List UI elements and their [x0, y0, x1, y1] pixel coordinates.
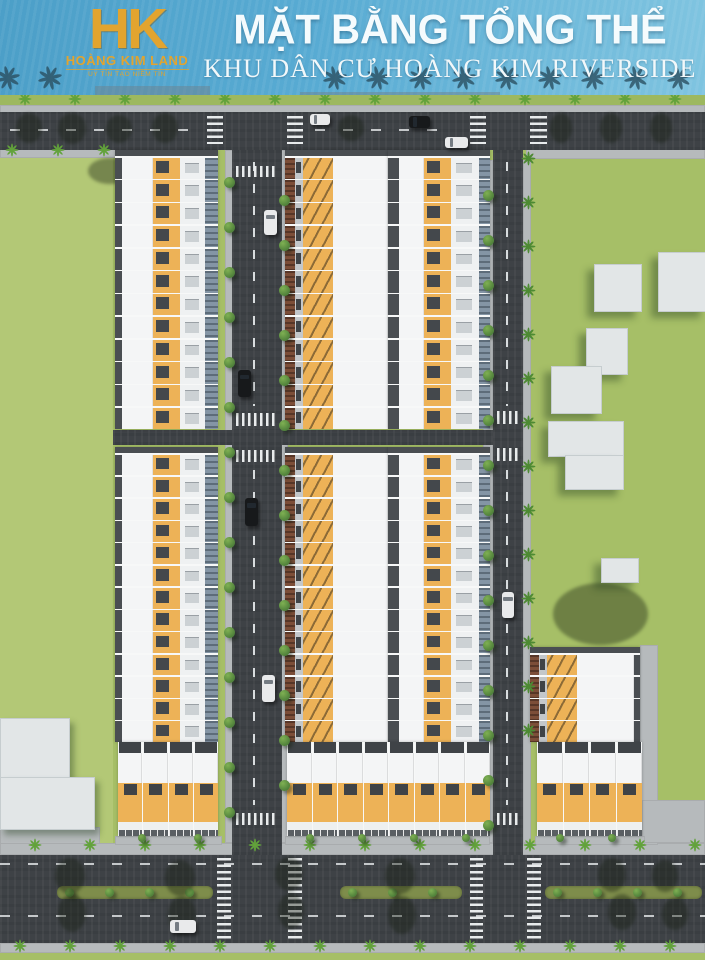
roof-header	[467, 742, 490, 753]
house-row	[388, 699, 490, 720]
roof-segment-osky	[153, 477, 180, 498]
roof-segment-osky	[153, 385, 180, 406]
house-row	[388, 340, 490, 361]
garage-door	[370, 784, 383, 795]
tree-icon	[483, 325, 494, 336]
house-row	[285, 566, 388, 587]
roof-detail	[296, 412, 300, 423]
roof-segment-dark	[634, 699, 640, 720]
roof-segment-white	[333, 610, 388, 631]
tree-icon	[553, 888, 562, 897]
tree-icon	[224, 447, 235, 458]
roof-segment-dark	[388, 588, 399, 609]
facade	[364, 822, 389, 830]
house-row	[115, 362, 218, 383]
roof-detail	[296, 276, 300, 287]
roof-detail	[456, 615, 472, 626]
house-row	[285, 655, 388, 676]
roof-segment-white	[399, 699, 424, 720]
roof-segment-awn	[479, 521, 490, 542]
palm-tree-icon	[663, 939, 677, 953]
roof-detail	[427, 658, 440, 670]
block-rows	[115, 453, 218, 742]
roof-detail	[156, 525, 169, 537]
roof-segment-white	[399, 158, 424, 179]
roof-segment-white	[399, 317, 424, 338]
house-row	[388, 226, 490, 247]
roof-detail	[296, 321, 300, 332]
roof-segment-entry	[295, 566, 303, 587]
roof-detail	[456, 185, 472, 196]
roof-segment-entry	[295, 226, 303, 247]
roof-segment-osky	[424, 566, 451, 587]
facade	[313, 822, 338, 830]
house-row	[115, 477, 218, 498]
tree-icon	[279, 195, 290, 206]
roof-segment-ox	[547, 699, 577, 720]
roof-segment-white	[399, 655, 424, 676]
roof-segment-entry	[295, 317, 303, 338]
tree-icon	[673, 888, 682, 897]
roof-segment-brown	[285, 385, 295, 406]
tree-icon	[483, 775, 494, 786]
roof-segment-white	[399, 455, 424, 476]
roof-segment-white	[122, 588, 153, 609]
road	[493, 150, 523, 855]
roof-segment-ox	[303, 521, 333, 542]
roof-segment-ox	[303, 249, 333, 270]
house	[194, 742, 218, 836]
garage-door	[596, 784, 609, 795]
roof-segment-front	[451, 203, 479, 224]
house-row	[388, 294, 490, 315]
tree-icon	[483, 595, 494, 606]
roof-detail	[185, 254, 200, 265]
palm-tree-icon	[463, 939, 477, 953]
block-rows	[388, 156, 490, 429]
company-logo: HK HOÀNG KIM LAND UY TÍN TẠO NIỀM TIN	[52, 2, 202, 78]
roof-header	[339, 742, 362, 753]
roof-segment-white	[122, 294, 153, 315]
roof-segment-ox	[303, 610, 333, 631]
roof-detail	[456, 660, 472, 671]
roof-detail	[185, 299, 200, 310]
roof-segment-awn	[205, 677, 218, 698]
building	[565, 455, 624, 490]
house	[169, 742, 193, 836]
palm-silhouette-icon	[0, 62, 24, 94]
roof-segment-ox	[303, 317, 333, 338]
roof-header	[365, 742, 388, 753]
roof-segment-awn	[479, 203, 490, 224]
roof-segment-awn	[205, 408, 218, 429]
roof-segment-awn	[479, 655, 490, 676]
roof-segment-front	[451, 249, 479, 270]
roof-segment-osky	[153, 566, 180, 587]
roof-detail	[185, 208, 200, 219]
palm-tree-icon	[248, 838, 262, 852]
house-row	[115, 180, 218, 201]
roof-segment-white	[333, 408, 388, 429]
roof-segment-white	[333, 271, 388, 292]
roof-segment-ox	[303, 588, 333, 609]
roof-detail	[185, 367, 200, 378]
roof-detail	[456, 637, 472, 648]
roof-segment-front	[451, 455, 479, 476]
roof-segment-osky	[424, 362, 451, 383]
crosswalk	[236, 813, 278, 825]
house-row	[285, 362, 388, 383]
roof-segment-brown	[285, 610, 295, 631]
roof-detail	[185, 526, 200, 537]
roof-segment-white	[122, 477, 153, 498]
tree-icon	[633, 888, 642, 897]
roof-detail	[156, 343, 169, 355]
car-windshield	[240, 375, 250, 379]
house-row	[388, 499, 490, 520]
facade	[169, 822, 193, 830]
roof-segment-white	[333, 521, 388, 542]
tree-icon	[483, 820, 494, 831]
car-windshield	[314, 115, 317, 123]
house-row	[388, 543, 490, 564]
roof-segment-white	[399, 203, 424, 224]
roof-segment-entry	[295, 588, 303, 609]
roof-segment-dark	[115, 566, 122, 587]
tree-shadow	[650, 113, 672, 143]
house-row	[115, 566, 218, 587]
garage-door	[149, 784, 162, 795]
roof-detail	[296, 390, 300, 401]
house-row	[285, 610, 388, 631]
car-windshield	[264, 680, 274, 684]
roof-segment-brown	[530, 699, 539, 720]
facade-base	[313, 830, 338, 836]
house-row	[388, 521, 490, 542]
roof-segment-front	[180, 655, 205, 676]
roof-header	[390, 742, 413, 753]
palm-tree-icon	[468, 838, 482, 852]
roof-segment-entry	[295, 294, 303, 315]
roof-segment-dark	[115, 588, 122, 609]
house-row	[388, 385, 490, 406]
car	[409, 116, 430, 128]
house-row	[388, 203, 490, 224]
roof-segment-front	[451, 610, 479, 631]
roof-segment-dark	[388, 610, 399, 631]
roof-segment-white	[333, 203, 388, 224]
garage-door	[319, 784, 332, 795]
lane-dash	[506, 470, 508, 805]
roof-segment-white	[399, 588, 424, 609]
facade-base	[143, 830, 167, 836]
roof-segment-entry	[295, 477, 303, 498]
tree-icon	[279, 645, 290, 656]
roof-detail	[296, 526, 300, 537]
roof-segment-front	[180, 455, 205, 476]
roof-segment-osky	[424, 340, 451, 361]
palm-tree-icon	[521, 679, 536, 694]
building	[0, 718, 70, 782]
roof-segment-osky	[153, 294, 180, 315]
banner-shore-band	[95, 86, 210, 95]
tree-icon	[279, 375, 290, 386]
roof-segment-white	[399, 362, 424, 383]
roof-segment-front	[180, 566, 205, 587]
garage-door	[344, 784, 357, 795]
tree-icon	[483, 730, 494, 741]
roof-segment-ox	[303, 543, 333, 564]
crosswalk	[287, 116, 303, 144]
palm-tree-icon	[563, 939, 577, 953]
tree-icon	[483, 190, 494, 201]
roof-segment-entry	[295, 271, 303, 292]
tree-icon	[194, 834, 202, 842]
roof-segment-front	[451, 588, 479, 609]
tree-shadow	[385, 858, 415, 894]
building	[601, 558, 639, 583]
roof-detail	[456, 276, 472, 287]
roof-segment-awn	[479, 699, 490, 720]
roof-detail	[456, 254, 472, 265]
roof-segment-dark	[388, 226, 399, 247]
tree-icon	[145, 888, 154, 897]
roof-segment-entry	[295, 677, 303, 698]
roof-segment-dark	[388, 203, 399, 224]
roof-detail	[296, 592, 300, 603]
roof-segment-white	[122, 632, 153, 653]
roof-segment-dark	[388, 655, 399, 676]
roof-segment-dark	[115, 655, 122, 676]
roof-segment-ox	[303, 655, 333, 676]
roof-detail	[296, 459, 300, 470]
roof-segment-brown	[285, 521, 295, 542]
house-row	[388, 408, 490, 429]
roof-detail	[456, 299, 472, 310]
roof-white	[590, 753, 616, 783]
roof-segment-dark	[388, 317, 399, 338]
roof-detail	[156, 161, 169, 173]
housing-block	[115, 150, 218, 429]
garage-door	[175, 784, 188, 795]
roof-detail	[156, 206, 169, 218]
roof-detail	[156, 366, 169, 378]
garage-door	[124, 784, 137, 795]
roof-segment-ox	[303, 203, 333, 224]
roof-detail	[427, 636, 440, 648]
roof-detail	[296, 208, 300, 219]
roof-segment-dark	[388, 677, 399, 698]
house-row	[285, 521, 388, 542]
house-row	[388, 655, 490, 676]
palm-tree-icon	[63, 939, 77, 953]
roof-detail	[540, 726, 544, 737]
roof-detail	[156, 502, 169, 514]
roof-segment-dark	[115, 158, 122, 179]
tree-icon	[224, 717, 235, 728]
roof-segment-awn	[479, 477, 490, 498]
tree-icon	[306, 834, 314, 842]
roof-segment-osky	[424, 588, 451, 609]
roof-segment-front	[451, 271, 479, 292]
roof-detail	[185, 726, 200, 737]
roof-segment-front	[180, 385, 205, 406]
roof-segment-dark	[115, 699, 122, 720]
house-row	[285, 477, 388, 498]
roof-segment-dark	[634, 677, 640, 698]
roof-segment-dark	[388, 455, 399, 476]
housing-block	[285, 150, 388, 429]
palm-tree-icon	[521, 415, 536, 430]
palm-tree-icon	[97, 143, 111, 157]
roof-detail	[456, 704, 472, 715]
palm-tree-icon	[688, 838, 702, 852]
roof-segment-entry	[539, 721, 547, 742]
house-row	[285, 317, 388, 338]
roof-segment-osky	[153, 317, 180, 338]
roof-segment-awn	[205, 499, 218, 520]
roof-segment-osky	[153, 408, 180, 429]
roof-detail	[427, 275, 440, 287]
roof-detail	[456, 208, 472, 219]
roof-detail	[296, 299, 300, 310]
facade	[564, 822, 590, 830]
house-row	[388, 180, 490, 201]
roof-white	[364, 753, 389, 783]
roof-segment-white	[399, 226, 424, 247]
house	[143, 742, 167, 836]
roof-segment-awn	[479, 249, 490, 270]
roof-segment-osky	[153, 180, 180, 201]
palm-tree-icon	[613, 939, 627, 953]
roof-segment-awn	[479, 158, 490, 179]
tree-icon	[224, 537, 235, 548]
roof-segment-awn	[205, 543, 218, 564]
roof-white	[440, 753, 465, 783]
roof-segment-front	[180, 362, 205, 383]
roof-segment-awn	[205, 632, 218, 653]
roof-segment-osky	[153, 677, 180, 698]
roof-segment-white	[333, 317, 388, 338]
roof-detail	[185, 593, 200, 604]
roof-segment-ox	[303, 632, 333, 653]
tree-shadow	[58, 894, 86, 932]
roof-detail	[540, 704, 544, 715]
roof-detail	[427, 480, 440, 492]
roof-detail	[156, 569, 169, 581]
roof-segment-white	[333, 721, 388, 742]
sidewalk	[642, 800, 705, 843]
roof-segment-dark	[388, 340, 399, 361]
crosswalk	[207, 116, 223, 144]
house-row	[388, 588, 490, 609]
roof-white	[537, 753, 563, 783]
house	[564, 742, 590, 836]
logo-tagline: UY TÍN TẠO NIỀM TIN	[66, 69, 189, 78]
tree-shadow	[55, 858, 85, 894]
roof-segment-front	[451, 655, 479, 676]
roof-segment-front	[451, 677, 479, 698]
roof-segment-osky	[153, 543, 180, 564]
tree-shadow	[600, 113, 622, 143]
house	[287, 742, 312, 836]
palm-tree-icon	[523, 838, 537, 852]
tree-icon	[105, 888, 114, 897]
roof-segment-dark	[115, 721, 122, 742]
roof-segment-front	[180, 521, 205, 542]
tree-shadow	[152, 113, 178, 143]
tree-icon	[224, 492, 235, 503]
house-row	[115, 340, 218, 361]
roof-segment-entry	[295, 499, 303, 520]
car-windshield	[503, 597, 512, 601]
roof-segment-awn	[479, 340, 490, 361]
housing-block	[285, 447, 388, 742]
roof-header	[591, 742, 615, 753]
roof-segment-front	[180, 721, 205, 742]
roof-segment-ox	[303, 721, 333, 742]
roof-segment-dark	[388, 294, 399, 315]
roof-white	[564, 753, 590, 783]
roof-segment-osky	[424, 408, 451, 429]
roof-segment-white	[122, 521, 153, 542]
roof-segment-awn	[205, 721, 218, 742]
roof-detail	[427, 229, 440, 241]
roof-detail	[185, 548, 200, 559]
tree-icon	[483, 370, 494, 381]
house-row	[115, 632, 218, 653]
roof-detail	[540, 659, 544, 670]
roof-segment-awn	[205, 226, 218, 247]
roof-segment-front	[180, 588, 205, 609]
block-rows	[530, 653, 640, 742]
roof-segment-white	[577, 677, 634, 698]
roof-segment-white	[122, 566, 153, 587]
roof-detail	[296, 704, 300, 715]
roof-segment-dark	[388, 385, 399, 406]
roof-detail	[156, 411, 169, 423]
car	[238, 370, 251, 397]
roof-segment-dark	[388, 477, 399, 498]
roof-segment-front	[451, 340, 479, 361]
house-row	[285, 271, 388, 292]
roof-segment-white	[122, 455, 153, 476]
banner: HK HOÀNG KIM LAND UY TÍN TẠO NIỀM TIN MẶ…	[0, 0, 705, 95]
roof-detail	[156, 658, 169, 670]
crosswalk	[497, 411, 521, 424]
roof-segment-awn	[205, 203, 218, 224]
roof-segment-ox	[303, 340, 333, 361]
house-row	[115, 499, 218, 520]
roof-segment-front	[180, 477, 205, 498]
house-row	[285, 721, 388, 742]
roof-segment-brown	[285, 158, 295, 179]
tree-icon	[410, 834, 418, 842]
roof-detail	[427, 366, 440, 378]
roof-detail	[456, 231, 472, 242]
palm-tree-icon	[521, 195, 536, 210]
house-row	[388, 362, 490, 383]
roof-segment-dark	[115, 271, 122, 292]
roof-detail	[456, 482, 472, 493]
facade	[440, 822, 465, 830]
roof-segment-osky	[153, 588, 180, 609]
roof-header	[538, 742, 562, 753]
roof-segment-front	[451, 699, 479, 720]
palm-tree-icon	[521, 503, 536, 518]
roof-segment-osky	[424, 477, 451, 498]
roof-segment-front	[180, 249, 205, 270]
